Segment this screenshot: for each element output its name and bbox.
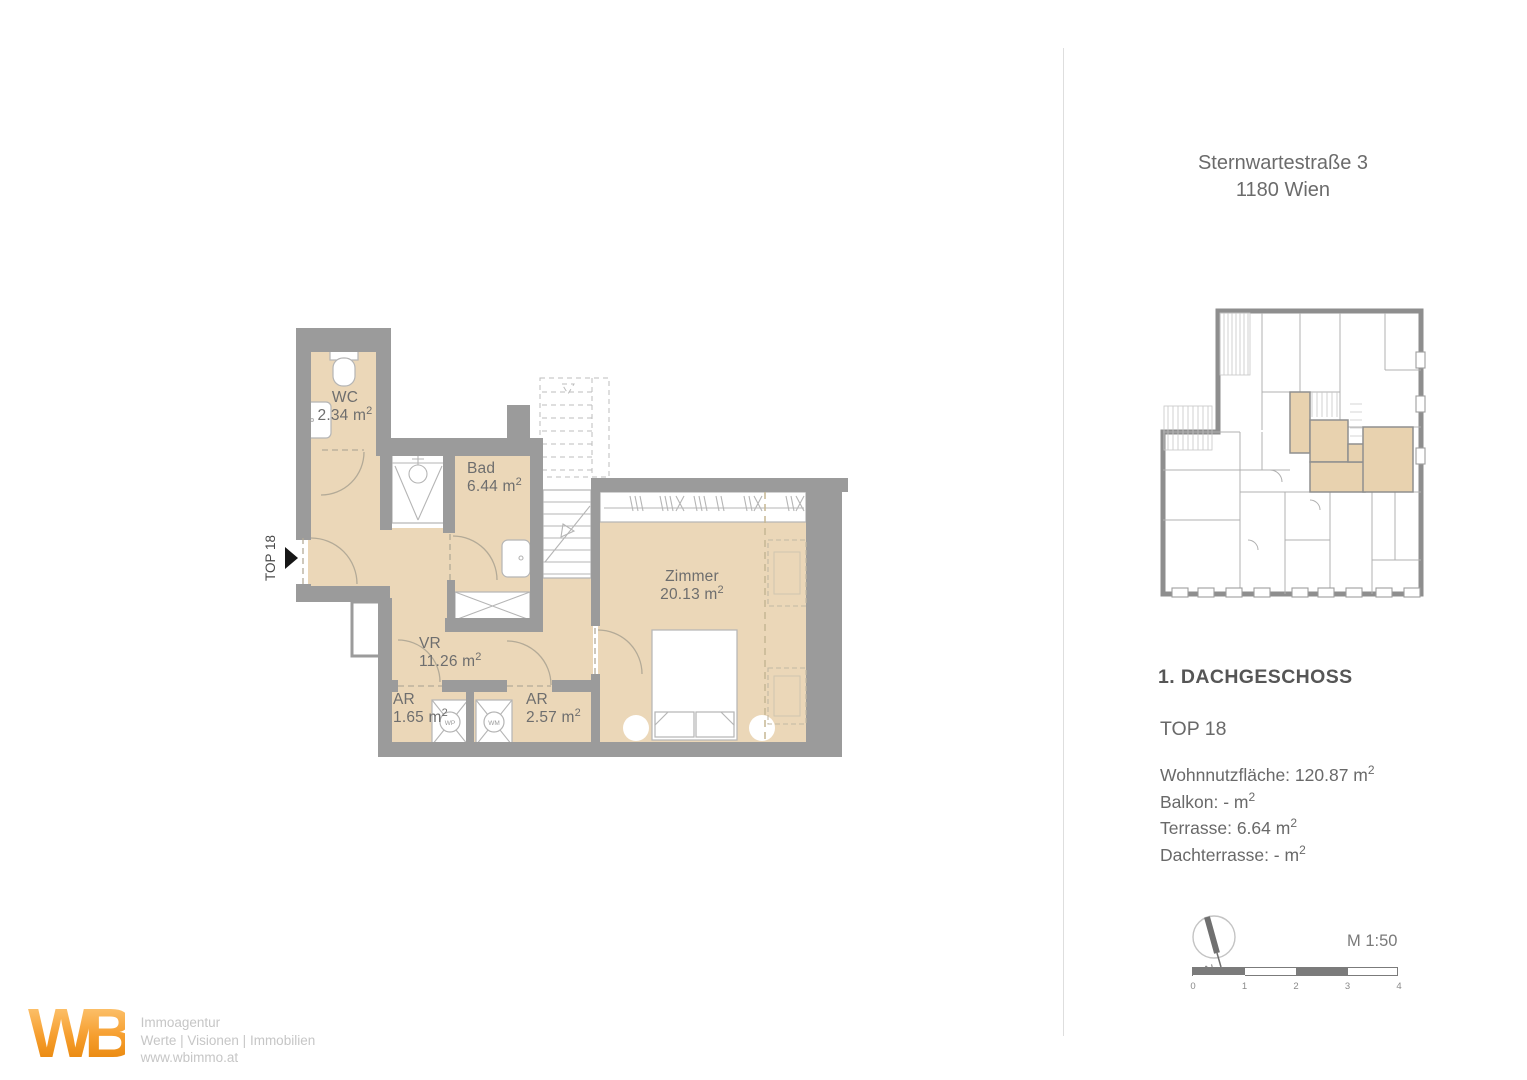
room-label-ar2: AR 2.57 m2 bbox=[526, 691, 581, 726]
wardrobe bbox=[600, 492, 806, 522]
appliance-label-wm: WM bbox=[488, 720, 500, 727]
bathtub-element bbox=[455, 592, 530, 620]
address-city: 1180 Wien bbox=[1098, 177, 1468, 204]
scale-tick: 2 bbox=[1293, 981, 1298, 992]
room-area: 1.65 m2 bbox=[393, 709, 448, 727]
logo-monogram: WB bbox=[28, 1002, 125, 1064]
scale-segment bbox=[1193, 975, 1245, 982]
room-name: Zimmer bbox=[628, 568, 756, 586]
plan-sheet: WP WM bbox=[0, 0, 1527, 1080]
room-name: AR bbox=[393, 691, 448, 709]
scale-bar: 0 1 2 3 4 bbox=[1192, 967, 1398, 976]
stat-balkon: Balkon: - m2 bbox=[1160, 789, 1375, 816]
column-divider bbox=[1063, 48, 1064, 1036]
unit-title: TOP 18 bbox=[1160, 718, 1227, 741]
scale-segment bbox=[1245, 968, 1297, 975]
room-name: AR bbox=[526, 691, 581, 709]
stat-dachterrasse: Dachterrasse: - m2 bbox=[1160, 842, 1375, 869]
room-area: 6.44 m2 bbox=[467, 478, 522, 496]
scale-tick: 0 bbox=[1190, 981, 1195, 992]
scale-segment bbox=[1296, 968, 1348, 975]
room-label-zimmer: Zimmer 20.13 m2 bbox=[628, 568, 756, 603]
company-logo: WB Immoagentur Werte | Visionen | Immobi… bbox=[28, 1002, 315, 1067]
scale-tick: 1 bbox=[1242, 981, 1247, 992]
address-street: Sternwartestraße 3 bbox=[1098, 150, 1468, 177]
room-label-vr: VR 11.26 m2 bbox=[419, 635, 482, 670]
room-name: VR bbox=[419, 635, 482, 653]
logo-line-2: Werte | Visionen | Immobilien bbox=[141, 1032, 316, 1050]
mini-floor-plan bbox=[1148, 298, 1440, 610]
logo-line-1: Immoagentur bbox=[141, 1014, 316, 1032]
scale-segment bbox=[1193, 968, 1245, 975]
room-name: Bad bbox=[467, 460, 522, 478]
interior-stair bbox=[543, 490, 591, 578]
area-stats: Wohnnutzfläche: 120.87 m2 Balkon: - m2 T… bbox=[1160, 762, 1375, 868]
room-label-ar1: AR 1.65 m2 bbox=[393, 691, 448, 726]
logo-line-3: www.wbimmo.at bbox=[141, 1049, 316, 1067]
stat-wohnnutzflaeche: Wohnnutzfläche: 120.87 m2 bbox=[1160, 762, 1375, 789]
wc-toilet bbox=[330, 348, 358, 386]
room-area: 20.13 m2 bbox=[628, 586, 756, 604]
unit-entrance-label: TOP 18 bbox=[263, 527, 279, 589]
address-block: Sternwartestraße 3 1180 Wien bbox=[1098, 150, 1468, 204]
room-area: 11.26 m2 bbox=[419, 653, 482, 671]
exterior-stair-dashed bbox=[540, 378, 609, 477]
floor-title: 1. DACHGESCHOSS bbox=[1158, 666, 1353, 689]
entrance-arrow-icon bbox=[285, 547, 298, 569]
washing-machine-appliance: WM bbox=[476, 700, 512, 745]
shower bbox=[392, 453, 445, 523]
stat-terrasse: Terrasse: 6.64 m2 bbox=[1160, 815, 1375, 842]
bed bbox=[652, 630, 737, 740]
room-label-bad: Bad 6.44 m2 bbox=[467, 460, 522, 495]
room-label-wc: WC 2.34 m2 bbox=[310, 389, 380, 424]
scale-tick: 4 bbox=[1396, 981, 1401, 992]
room-area: 2.57 m2 bbox=[526, 709, 581, 727]
bad-washbasin bbox=[502, 540, 530, 577]
scale-tick: 3 bbox=[1345, 981, 1350, 992]
logo-text: Immoagentur Werte | Visionen | Immobilie… bbox=[141, 1002, 316, 1067]
map-scale-label: M 1:50 bbox=[1347, 932, 1397, 951]
room-area: 2.34 m2 bbox=[310, 407, 380, 425]
